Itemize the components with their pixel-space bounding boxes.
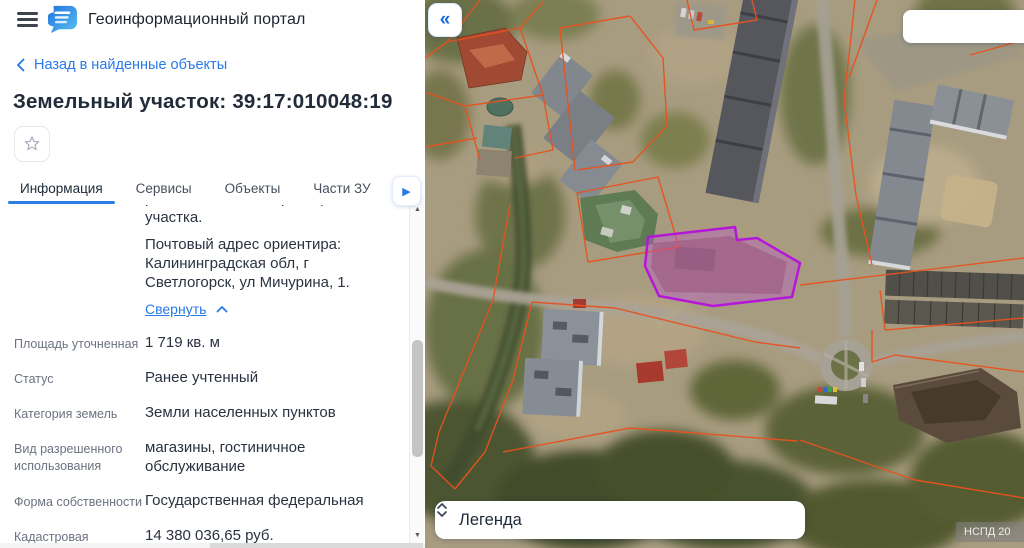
field-label: Площадь уточненная <box>14 333 145 353</box>
field-row-land-category: Категория земель Земли населенных пункто… <box>0 403 409 423</box>
back-link-label: Назад в найденные объекты <box>34 57 227 73</box>
field-value: 14 380 036,65 руб. <box>145 526 409 543</box>
address-line: Светлогорск, ул Мичурина, 1. <box>145 273 395 292</box>
favorite-button[interactable] <box>14 126 50 162</box>
address-line: Почтовый адрес ориентира: <box>145 235 395 254</box>
chevron-up-icon <box>216 305 228 313</box>
collapse-link-label: Свернуть <box>145 301 206 317</box>
expand-collapse-chevrons-icon <box>435 501 449 519</box>
vertical-scrollbar[interactable]: ▲ ▼ <box>409 197 424 548</box>
field-label: Категория земель <box>14 403 145 423</box>
tabs-overflow-button[interactable]: ▶ <box>392 176 421 206</box>
scrollbar-down-arrow-icon[interactable]: ▼ <box>410 532 425 539</box>
address-description: расположенного в границах участка. Почто… <box>145 197 395 292</box>
legend-label: Легенда <box>459 511 785 530</box>
address-line: Калининградская обл, г <box>145 254 395 273</box>
app-title: Геоинформационный портал <box>88 11 305 29</box>
field-value: Ранее учтенный <box>145 368 409 388</box>
vertical-scrollbar-thumb[interactable] <box>412 340 423 457</box>
field-value: Земли населенных пунктов <box>145 403 409 423</box>
field-row-area: Площадь уточненная 1 719 кв. м <box>0 333 409 353</box>
field-label: Вид разрешенного использования <box>14 438 145 476</box>
chevron-right-icon: ▶ <box>402 185 410 198</box>
field-value: 1 719 кв. м <box>145 333 409 353</box>
double-chevron-left-icon: « <box>440 9 451 31</box>
tab-information[interactable]: Информация <box>10 172 113 205</box>
horizontal-scrollbar[interactable] <box>0 543 425 548</box>
collapse-panel-button[interactable]: « <box>428 3 462 37</box>
map-search-input[interactable] <box>903 10 1024 43</box>
field-label: Статус <box>14 368 145 388</box>
back-to-results-link[interactable]: Назад в найденные объекты <box>16 57 227 73</box>
menu-hamburger-icon[interactable] <box>17 12 38 27</box>
tab-bar: Информация Сервисы Объекты Части ЗУ Сост… <box>0 172 395 205</box>
object-info-panel: Геоинформационный портал Назад в найденн… <box>0 0 425 548</box>
tab-parcel-parts[interactable]: Части ЗУ <box>303 172 380 205</box>
map-canvas[interactable]: « Легенда НСПД 20 <box>425 0 1024 548</box>
attribute-list: Площадь уточненная 1 719 кв. м Статус Ра… <box>0 333 409 543</box>
chevron-left-icon <box>16 58 25 72</box>
field-row-ownership: Форма собственности Государственная феде… <box>0 491 409 511</box>
horizontal-scrollbar-thumb[interactable] <box>210 543 423 548</box>
scrollbar-up-arrow-icon[interactable]: ▲ <box>410 206 425 213</box>
field-value: Государственная федеральная <box>145 491 409 511</box>
portal-logo-icon <box>48 5 78 33</box>
collapse-description-link[interactable]: Свернуть <box>145 301 409 317</box>
legend-toggle[interactable]: Легенда <box>435 501 805 539</box>
tab-services[interactable]: Сервисы <box>126 172 202 205</box>
satellite-map-image <box>425 0 1024 548</box>
field-row-permitted-use: Вид разрешенного использования магазины,… <box>0 438 409 476</box>
nspd-watermark: НСПД 20 <box>956 522 1024 542</box>
field-row-status: Статус Ранее учтенный <box>0 368 409 388</box>
page-title: Земельный участок: 39:17:010048:19 <box>13 90 393 114</box>
field-row-cadastral-value: Кадастровая стоимость 14 380 036,65 руб. <box>0 526 409 543</box>
field-label: Кадастровая стоимость <box>14 526 145 543</box>
info-scroll-area[interactable]: расположенного в границах участка. Почто… <box>0 197 409 543</box>
star-icon <box>22 134 42 154</box>
app-header: Геоинформационный портал <box>0 0 425 40</box>
field-label: Форма собственности <box>14 491 145 511</box>
field-value: магазины, гостиничное обслуживание <box>145 438 409 476</box>
geoportal-window: « Легенда НСПД 20 <box>0 0 1024 548</box>
tab-objects[interactable]: Объекты <box>215 172 291 205</box>
